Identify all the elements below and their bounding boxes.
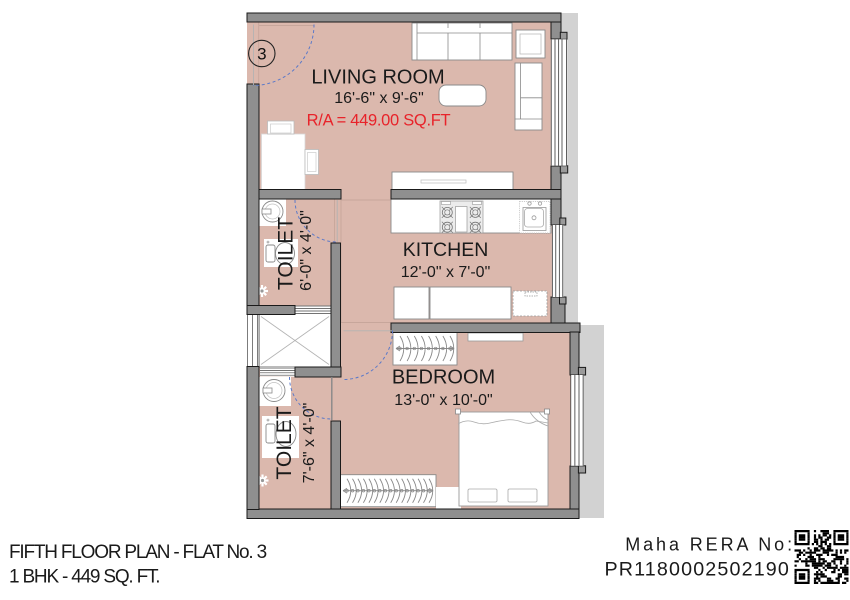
svg-text:TOILET: TOILET [275, 217, 298, 290]
svg-text:6'-0" x 4'-0": 6'-0" x 4'-0" [298, 210, 315, 291]
svg-text:12'-0" x 7'-0": 12'-0" x 7'-0" [401, 264, 491, 281]
svg-text:KITCHEN: KITCHEN [403, 239, 489, 261]
svg-text:13'-0" x 10'-0": 13'-0" x 10'-0" [394, 392, 492, 409]
svg-text:R/A = 449.00 SQ.FT: R/A = 449.00 SQ.FT [307, 112, 451, 130]
svg-text:LIVING ROOM: LIVING ROOM [311, 67, 444, 89]
svg-text:7'-6" x 4'-0": 7'-6" x 4'-0" [301, 403, 318, 484]
svg-text:3: 3 [257, 45, 266, 64]
svg-text:16'-6" x 9'-6": 16'-6" x 9'-6" [334, 90, 424, 107]
svg-text:BEDROOM: BEDROOM [392, 367, 495, 389]
svg-text:TOILET: TOILET [273, 406, 296, 479]
svg-text:FIFTH FLOOR PLAN - FLAT No. 3: FIFTH FLOOR PLAN - FLAT No. 3 [9, 542, 267, 563]
svg-text:PR1180002502190: PR1180002502190 [605, 559, 790, 581]
svg-text:Maha RERA No:: Maha RERA No: [625, 535, 795, 555]
svg-text:1 BHK - 449 SQ. FT.: 1 BHK - 449 SQ. FT. [9, 567, 159, 588]
